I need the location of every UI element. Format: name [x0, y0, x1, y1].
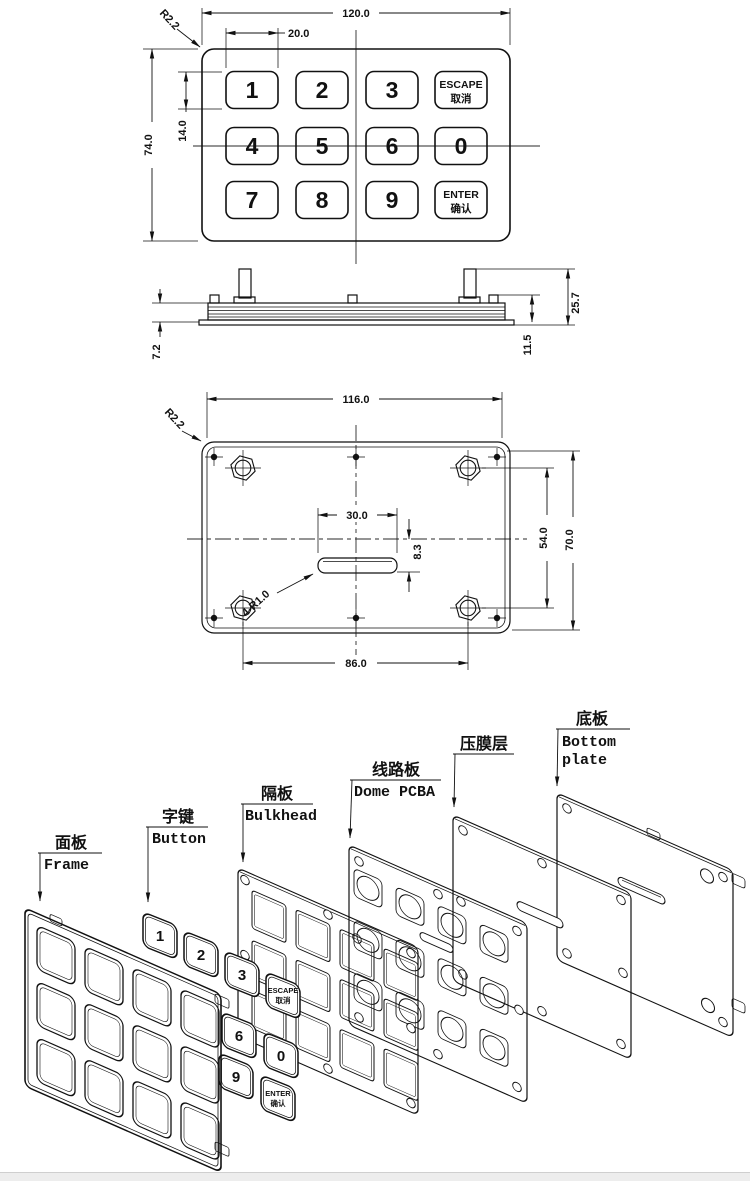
mounting-stud-left: [239, 269, 251, 298]
locating-pin-left: [210, 295, 219, 303]
keycap-escape-label-zh: 取消: [276, 995, 291, 1005]
metal-dome: [438, 905, 466, 945]
bottom-plate-part: [557, 788, 745, 1043]
keycap-2-label: 2: [197, 947, 205, 964]
keycap-escape-label-en: ESCAPE: [268, 986, 299, 995]
cable-slot: [318, 558, 397, 573]
metal-dome: [480, 976, 508, 1016]
pcba-slot: [420, 931, 453, 954]
key-escape-label-en: ESCAPE: [439, 79, 482, 91]
keypad-engineering-drawing-page: 1 2 3 ESCAPE 取消 4 5 6 0: [0, 0, 750, 1181]
label-bottom-plate-en-line2: plate: [562, 752, 607, 769]
dim-corner-radius-top: R2.2: [157, 7, 200, 47]
rivet-hole: [347, 609, 365, 627]
keycap-0-label: 0: [277, 1048, 285, 1065]
metal-dome: [354, 868, 382, 908]
label-bottom-plate: 底板 Bottom plate: [556, 709, 630, 786]
dome-pcba-part: [349, 845, 527, 1103]
label-button-en: Button: [152, 831, 206, 848]
mounting-stud-right: [464, 269, 476, 298]
key-9: 9: [366, 182, 418, 219]
keycap-3-label: 3: [238, 967, 246, 984]
key-1-label: 1: [246, 77, 259, 103]
metal-dome: [438, 1009, 466, 1049]
key-9-label: 9: [386, 187, 399, 213]
key-8-label: 8: [316, 187, 329, 213]
label-dome-pcba-en: Dome PCBA: [354, 784, 435, 801]
dim-slot-corner-radius-label: 4-R1.0: [240, 588, 273, 619]
dim-corner-radius-top-label: R2.2: [157, 7, 182, 32]
key-7-label: 7: [246, 187, 259, 213]
label-frame-en: Frame: [44, 857, 89, 874]
dim-key-height-14-label: 14.0: [177, 120, 189, 141]
metal-dome: [354, 972, 382, 1012]
locating-pin-center: [348, 295, 357, 303]
dim-width-116-label: 116.0: [343, 394, 370, 406]
metal-dome: [480, 924, 508, 964]
label-bulkhead: 隔板 Bulkhead: [241, 784, 317, 862]
dim-key-height-14: 14.0: [177, 72, 222, 150]
key-escape: ESCAPE 取消: [435, 72, 487, 109]
metal-dome: [480, 1028, 508, 1068]
plate-stack: [208, 303, 505, 320]
dim-hole-spacing-y-label: 70.0: [564, 529, 576, 550]
rivet-hole: [205, 609, 223, 627]
dim-slot-offset-label: 8.3: [412, 544, 424, 559]
key-enter-label-en: ENTER: [443, 189, 479, 201]
metal-dome: [396, 887, 424, 927]
keycap-9-label: 9: [232, 1069, 240, 1086]
key-3: 3: [366, 72, 418, 109]
key-5-label: 5: [316, 133, 329, 159]
rivet-hole: [205, 448, 223, 466]
key-2: 2: [296, 72, 348, 109]
dim-mount-spacing-x-86: 86.0: [243, 622, 468, 670]
label-button-zh: 字键: [162, 807, 194, 826]
key-1: 1: [226, 72, 278, 109]
key-0-label: 0: [455, 133, 468, 159]
key-enter-label-zh: 确认: [451, 202, 472, 215]
keycap-enter-label-en: ENTER: [265, 1089, 291, 1098]
label-frame-zh: 面板: [55, 833, 88, 852]
dim-slot-offset-8-3: 8.3: [397, 519, 424, 592]
page-bottom-strip: [0, 1173, 750, 1181]
keycap-1-label: 1: [156, 928, 164, 945]
key-6-label: 6: [386, 133, 399, 159]
label-bulkhead-zh: 隔板: [261, 784, 294, 803]
dim-total-height-label: 25.7: [570, 292, 582, 313]
dim-corner-radius-bottom: R2.2: [162, 406, 201, 441]
side-view: 7.2 11.5 25.7: [151, 269, 582, 360]
key-3-label: 3: [386, 77, 399, 103]
key-2-label: 2: [316, 77, 329, 103]
dim-slot-width-label: 30.0: [346, 510, 367, 522]
exploded-view: 1 2 3 ESCAPE 取消 6 0 9 ENTER 确认: [25, 709, 745, 1176]
dim-mount-spacing-y-54: 54.0: [482, 468, 554, 608]
dim-width-120-label: 120.0: [342, 8, 370, 20]
bottom-view: 116.0 R2.2 30.0 8.3 4-R1.0: [162, 392, 580, 670]
metal-dome: [396, 939, 424, 979]
bottom-flange: [199, 320, 514, 325]
mounting-nut: [225, 450, 261, 486]
metal-dome: [438, 957, 466, 997]
rivet-hole: [347, 448, 365, 466]
dim-mount-spacing-x-label: 86.0: [345, 658, 366, 670]
key-4-label: 4: [246, 133, 259, 159]
label-bulkhead-en: Bulkhead: [245, 808, 317, 825]
key-enter: ENTER 确认: [435, 182, 487, 219]
dim-slot-corner-radius: 4-R1.0: [240, 574, 313, 619]
keycap-enter-label-zh: 确认: [271, 1098, 286, 1108]
dim-width-116: 116.0: [207, 392, 502, 438]
dim-height-74-label: 74.0: [143, 134, 155, 155]
mounting-nut: [450, 590, 486, 626]
dim-panel-thickness-label: 7.2: [151, 344, 163, 359]
label-dome-pcba: 线路板 Dome PCBA: [350, 760, 441, 838]
key-7: 7: [226, 182, 278, 219]
locating-pin-right: [489, 295, 498, 303]
top-view: 1 2 3 ESCAPE 取消 4 5 6 0: [143, 6, 540, 264]
metal-dome: [354, 920, 382, 960]
key-escape-label-zh: 取消: [451, 92, 472, 105]
dim-mount-spacing-y-label: 54.0: [538, 527, 550, 548]
label-button: 字键 Button: [146, 807, 208, 902]
keypad-engineering-drawing: 1 2 3 ESCAPE 取消 4 5 6 0: [0, 0, 750, 1181]
label-membrane-zh: 压膜层: [460, 734, 508, 753]
label-dome-pcba-zh: 线路板: [372, 760, 421, 779]
keycap-6-label: 6: [235, 1028, 243, 1045]
dim-corner-radius-bottom-label: R2.2: [162, 406, 187, 431]
key-8: 8: [296, 182, 348, 219]
label-bottom-plate-en-line1: Bottom: [562, 734, 616, 751]
dim-key-width-20: 20.0: [226, 28, 309, 68]
dim-key-width-20-label: 20.0: [288, 28, 309, 40]
label-membrane: 压膜层: [453, 734, 514, 807]
label-frame: 面板 Frame: [38, 833, 102, 901]
label-bottom-plate-zh: 底板: [576, 709, 609, 728]
dim-stud-height-label: 11.5: [522, 335, 534, 356]
mounting-nut: [450, 450, 486, 486]
dim-slot-width-30: 30.0: [318, 508, 397, 553]
